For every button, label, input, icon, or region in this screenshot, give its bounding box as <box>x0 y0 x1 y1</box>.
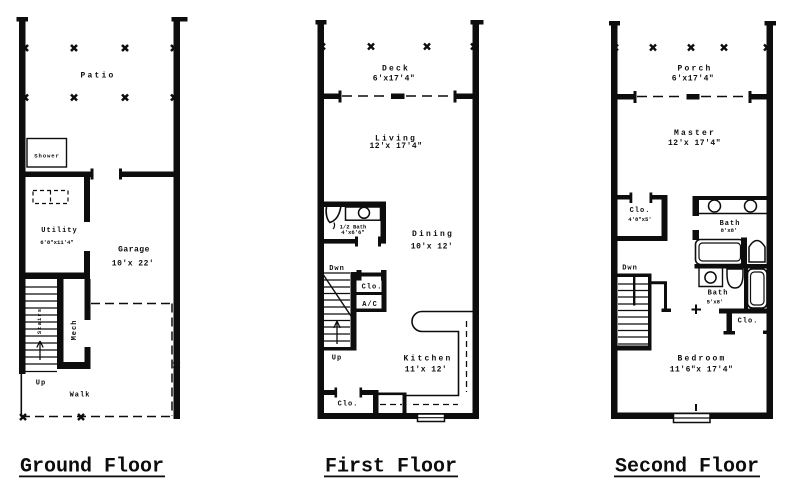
svg-text:Mech: Mech <box>71 320 79 341</box>
svg-text:First Floor: First Floor <box>325 456 457 479</box>
svg-text:12'x 17'4": 12'x 17'4" <box>369 142 422 151</box>
svg-text:Walk: Walk <box>70 392 91 400</box>
svg-text:Shower: Shower <box>34 153 60 160</box>
svg-text:Kitchen: Kitchen <box>403 355 452 364</box>
svg-text:10'x 12': 10'x 12' <box>411 243 453 252</box>
svg-text:Patio: Patio <box>80 72 115 81</box>
svg-text:6'8"x11'4": 6'8"x11'4" <box>40 239 74 246</box>
svg-text:Utility: Utility <box>41 227 77 235</box>
svg-text:8'x8': 8'x8' <box>721 227 738 234</box>
svg-text:Ground Floor: Ground Floor <box>20 456 164 479</box>
svg-text:Up: Up <box>36 380 46 388</box>
svg-text:4'8"x5': 4'8"x5' <box>628 216 652 223</box>
svg-text:Clo.: Clo. <box>738 318 759 326</box>
svg-text:Bath: Bath <box>708 290 729 298</box>
svg-text:5'x8': 5'x8' <box>707 299 724 306</box>
svg-text:Dwn: Dwn <box>329 265 345 273</box>
svg-text:Stairs: Stairs <box>36 308 43 334</box>
svg-text:Clo.: Clo. <box>338 401 359 409</box>
svg-text:10'x 22': 10'x 22' <box>112 260 154 269</box>
svg-text:6'x17'4": 6'x17'4" <box>672 75 714 84</box>
svg-text:A/C: A/C <box>362 301 378 309</box>
svg-text:Porch: Porch <box>677 65 712 74</box>
svg-text:Deck: Deck <box>382 65 410 74</box>
svg-text:Clo.: Clo. <box>362 284 383 292</box>
svg-text:11'x 12': 11'x 12' <box>405 366 447 375</box>
svg-text:Bedroom: Bedroom <box>677 355 726 364</box>
svg-text:Second Floor: Second Floor <box>615 456 759 479</box>
svg-text:Dining: Dining <box>412 230 454 239</box>
svg-text:11'6"x 17'4": 11'6"x 17'4" <box>670 366 734 375</box>
svg-text:6'x17'4": 6'x17'4" <box>373 75 415 84</box>
svg-text:Dwn: Dwn <box>622 265 638 273</box>
svg-text:12'x 17'4": 12'x 17'4" <box>668 139 721 148</box>
svg-text:Clo.: Clo. <box>630 207 651 215</box>
svg-text:4'x6'6": 4'x6'6" <box>341 229 365 236</box>
svg-text:Garage: Garage <box>118 246 150 255</box>
svg-text:Master: Master <box>674 129 716 138</box>
svg-text:Up: Up <box>332 355 342 363</box>
